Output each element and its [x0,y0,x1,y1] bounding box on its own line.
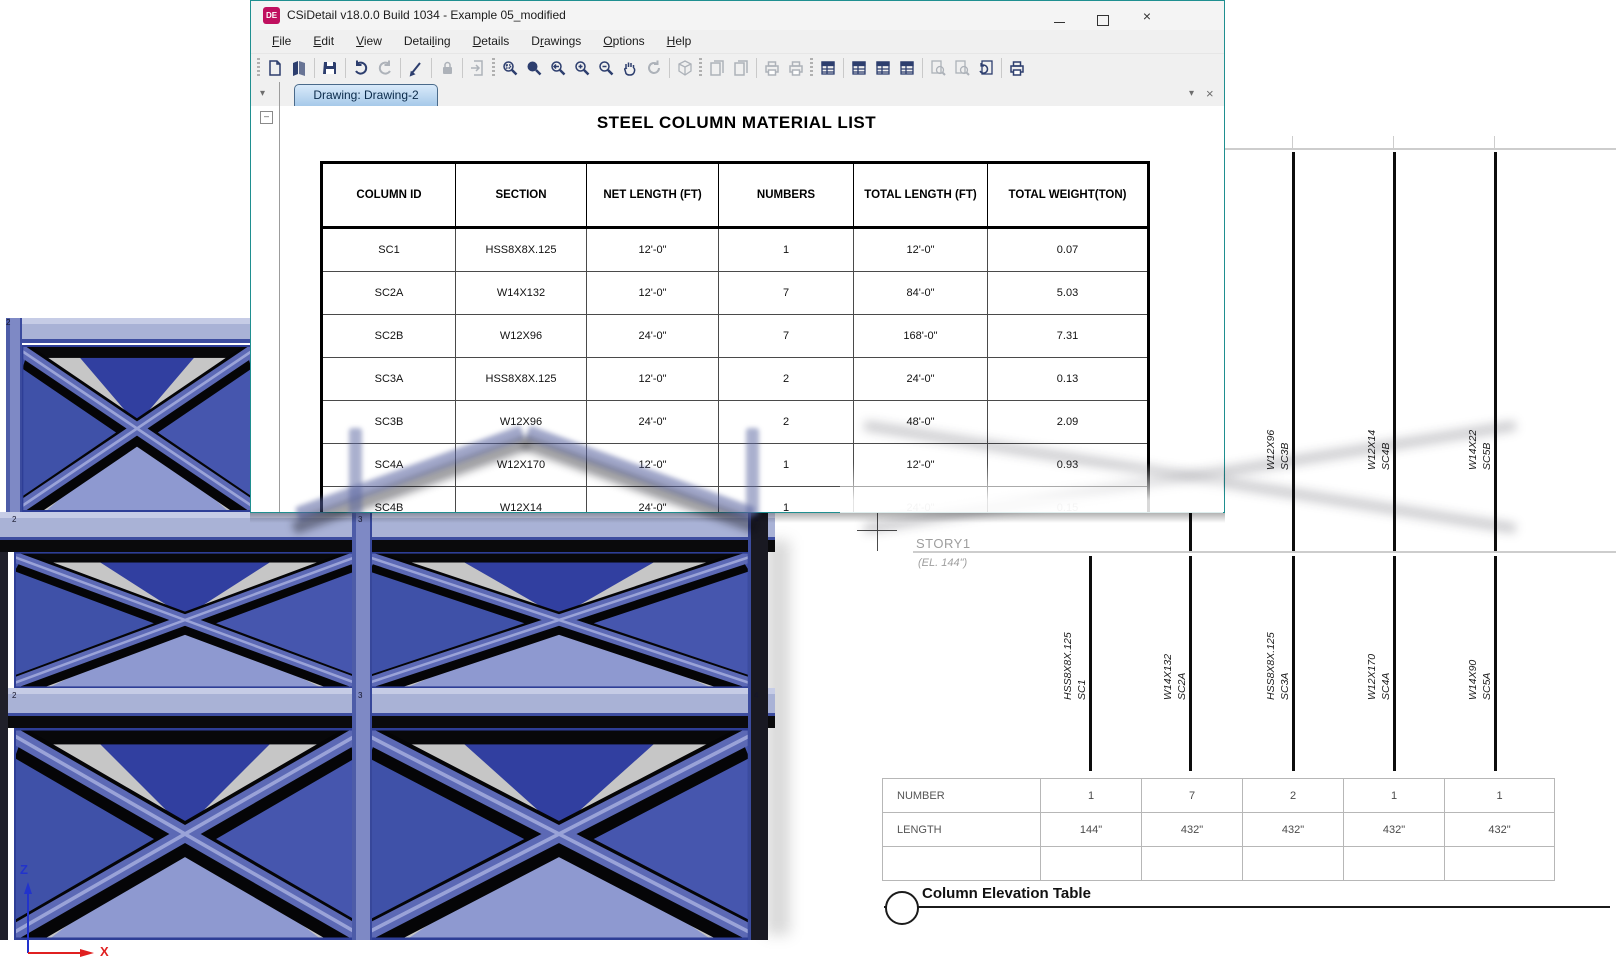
search-add-icon [929,59,947,77]
column-id-label: SC4A [1380,673,1392,700]
tab-drawing-2[interactable]: Drawing: Drawing-2 [294,84,438,106]
roof-tick [1494,136,1495,148]
redo-button[interactable] [374,56,397,80]
column-line-sc5b [1494,152,1497,552]
zoom-minus-icon [597,59,615,77]
section-label: W12X170 [1366,654,1378,700]
column-line-sc1 [1089,556,1092,771]
report-list-button[interactable] [817,56,840,80]
section-label: HSS8X8X.125 [1265,632,1277,700]
undo-button[interactable] [350,56,373,80]
roof-tick [1292,136,1293,148]
story1-level-line [913,551,1616,553]
column-id-label: SC3A [1279,673,1291,700]
story-elevation-label: (EL. 144") [918,557,967,569]
open-icon [290,59,308,77]
app-icon: DE [263,7,280,24]
view-3d-icon [676,59,694,77]
axis-triad: Z X [0,860,140,967]
search-view-icon [953,59,971,77]
zoom-window-icon [501,59,519,77]
canvas-left-margin: – [251,106,280,512]
maximize-button[interactable] [1081,1,1125,30]
export-page-button[interactable] [467,56,490,80]
menu-options[interactable]: Options [592,32,655,51]
toolbar-sep [669,58,670,78]
toolbar-sep [314,58,315,78]
toolbar-sep [431,58,432,78]
pen-button[interactable] [405,56,428,80]
print-export-button[interactable] [785,56,808,80]
column-id-label: SC2A [1176,673,1188,700]
joint-label: 4 [754,691,758,700]
title-underline [884,906,1610,908]
column-line-sc2a [1189,556,1192,771]
maximize-icon [1097,15,1109,26]
column-line-sc4a [1393,556,1396,771]
joint-label: 2 [6,318,10,327]
print-icon [1008,59,1026,77]
view-3d-button[interactable] [674,56,697,80]
zoom-in-button[interactable] [523,56,546,80]
table-row: SC1HSS8X8X.12512'-0"112'-0"0.07 [322,228,1149,272]
report-options-icon [850,59,868,77]
menu-view[interactable]: View [345,32,393,51]
table-row: SC2AW14X13212'-0"784'-0"5.03 [322,272,1149,315]
toolbar-handle [699,58,702,78]
report-list-icon [819,59,837,77]
report-window-button[interactable] [896,56,919,80]
ghost-column [349,428,362,516]
joint-label: 2 [12,691,16,700]
title-bar[interactable]: DE CSiDetail v18.0.0 Build 1034 - Exampl… [251,1,1224,30]
toolbar [251,53,1224,82]
minimize-icon [1054,22,1065,23]
open-button[interactable] [288,56,311,80]
toolbar-handle [810,58,813,78]
zoom-minus-button[interactable] [595,56,618,80]
zoom-in-icon [525,59,543,77]
tabstrip-divider [279,82,280,106]
tree-collapse-icon[interactable]: – [260,111,273,124]
z-axis-label: Z [20,862,28,877]
zoom-previous-button[interactable] [547,56,570,80]
tab-scroll-left-button[interactable]: ▾ [260,82,265,106]
doc-next-icon [732,59,750,77]
new-document-icon [266,59,284,77]
toolbar-sep [1001,58,1002,78]
menu-edit[interactable]: Edit [302,32,345,51]
toolbar-sep [462,58,463,78]
column-id-label: SC5A [1481,673,1493,700]
table-row: SC2BW12X9624'-0"7168'-0"7.31 [322,315,1149,358]
column-line-sc3a [1292,556,1295,771]
column-line-sc5a [1494,556,1497,771]
ghost-column [746,428,759,516]
print-preview-icon [763,59,781,77]
column-id-label: SC1 [1076,680,1088,700]
table-row: NUMBER 1 7 2 1 1 [883,779,1555,813]
toolbar-sep [756,58,757,78]
doc-next-button[interactable] [730,56,753,80]
report-options-button[interactable] [848,56,871,80]
close-button[interactable]: × [1125,1,1169,30]
zoom-window-button[interactable] [499,56,522,80]
material-list-title: STEEL COLUMN MATERIAL LIST [320,113,1153,133]
search-view-button[interactable] [951,56,974,80]
menu-details[interactable]: Details [462,32,521,51]
roof-level-line [1199,148,1616,150]
print-export-icon [787,59,805,77]
report-table-button[interactable] [872,56,895,80]
lock-button[interactable] [436,56,459,80]
rotate-view-icon [645,59,663,77]
menu-bar: File Edit View Detailing Details Drawing… [251,30,1224,53]
menu-help[interactable]: Help [656,32,703,51]
zoom-plus-button[interactable] [571,56,594,80]
rotate-view-button[interactable] [643,56,666,80]
redo-icon [376,59,394,77]
pan-button[interactable] [619,56,642,80]
pan-icon [621,59,639,77]
doc-refresh-icon [977,59,995,77]
column-line-sc4b [1393,152,1396,552]
table-row: SC3AHSS8X8X.12512'-0"224'-0"0.13 [322,358,1149,401]
toolbar-handle [492,58,495,78]
story-label: STORY1 [916,536,971,551]
menu-detailing[interactable]: Detailing [393,32,462,51]
toolbar-handle [257,58,260,78]
minimize-button[interactable] [1037,1,1081,30]
lock-icon [438,59,456,77]
print-button[interactable] [1006,56,1029,80]
joint-label: 3 [358,691,362,700]
toolbar-sep [922,58,923,78]
doc-previous-button[interactable] [706,56,729,80]
new-document-button[interactable] [264,56,287,80]
zoom-previous-icon [549,59,567,77]
menu-file[interactable]: File [261,32,302,51]
toolbar-sep [345,58,346,78]
section-label: HSS8X8X.125 [1062,632,1074,700]
roof-tick [1393,136,1394,148]
pen-icon [407,59,425,77]
doc-refresh-button[interactable] [975,56,998,80]
save-button[interactable] [319,56,342,80]
undo-icon [352,59,370,77]
tab-close-button[interactable]: × [1206,82,1214,106]
print-preview-button[interactable] [761,56,784,80]
tab-strip: ▾ Drawing: Drawing-2 ▾ × [251,82,1224,107]
search-add-button[interactable] [927,56,950,80]
detail-bubble [885,891,919,925]
menu-drawings[interactable]: Drawings [520,32,592,51]
section-label: W14X90 [1467,660,1479,700]
x-axis-label: X [100,944,109,959]
report-table-icon [874,59,892,77]
export-page-icon [469,59,487,77]
window-title: CSiDetail v18.0.0 Build 1034 - Example 0… [287,8,566,22]
toolbar-sep [400,58,401,78]
table-row: SC3BW12X9624'-0"248'-0"2.09 [322,401,1149,444]
app-window: DE CSiDetail v18.0.0 Build 1034 - Exampl… [250,0,1225,513]
toolbar-sep [843,58,844,78]
doc-previous-icon [708,59,726,77]
tab-list-button[interactable]: ▾ [1189,82,1194,106]
table-row [883,847,1555,881]
drawing-title: Column Elevation Table [922,885,1091,902]
table-header-row: COLUMN IDSECTION NET LENGTH (FT)NUMBERS … [322,163,1149,228]
joint-label: 2 [12,515,16,524]
save-icon [321,59,339,77]
table-row: LENGTH 144" 432" 432" 432" 432" [883,813,1555,847]
window-bottom-fade [840,463,1223,513]
report-window-icon [898,59,916,77]
zoom-plus-icon [573,59,591,77]
section-label: W14X132 [1162,654,1174,700]
column-summary-table: NUMBER 1 7 2 1 1 LENGTH 144" 432" 432" 4… [882,778,1555,881]
screen: W12X96 SC2B W12X96 SC3B W12X14 SC4B W14X… [0,0,1616,967]
column-id-label: SC5B [1481,443,1493,470]
